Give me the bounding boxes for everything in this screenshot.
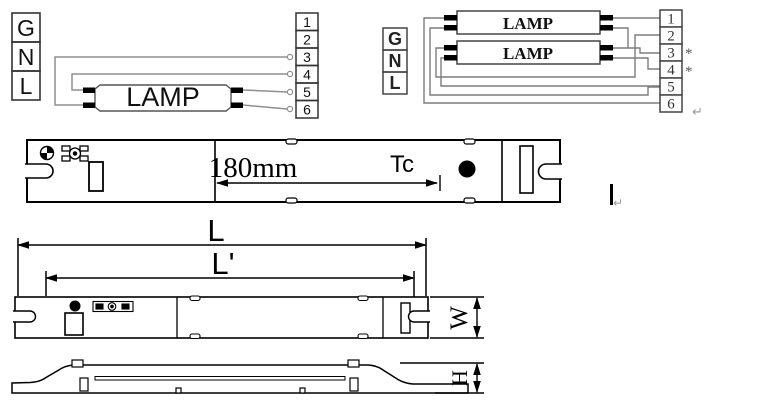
- lamp1-label: LAMP: [503, 14, 553, 33]
- top-view-180mm: 180mm Tc ↵: [25, 139, 623, 210]
- plan-view: [13, 296, 430, 339]
- tc-point-dot: [459, 161, 476, 178]
- right-cable-slot: [520, 146, 533, 193]
- tc-label: Tc: [390, 151, 414, 178]
- plan-screw-icon: [70, 301, 80, 311]
- out-terminal-1: 1: [303, 14, 311, 30]
- overall-length-label: L: [207, 213, 224, 248]
- out-terminal-3: 3: [303, 49, 311, 65]
- terminal2-l-label: L: [390, 73, 401, 93]
- lamp-label: LAMP: [126, 82, 200, 112]
- wire-end-circles: [287, 54, 292, 111]
- left-mounting-notch: [25, 164, 53, 178]
- datasheet-drawing: G N L LAMP: [0, 0, 767, 405]
- out2-terminal-2: 2: [667, 29, 675, 45]
- left-cable-slot: [89, 162, 103, 191]
- dimension-views: L L': [12, 213, 484, 393]
- dual-lamp-1: LAMP: [444, 11, 613, 34]
- terminal-n-label: N: [18, 44, 35, 70]
- screw-icon: [41, 147, 54, 160]
- dual-lamp-wiring-diagram: G N L LAMP LAMP: [383, 10, 703, 119]
- return-mark-icon: ↵: [692, 104, 703, 119]
- terminal2-g-label: G: [388, 29, 402, 49]
- return-mark-icon-2: ↵: [613, 196, 623, 210]
- terminal2-n-label: N: [389, 51, 402, 71]
- out2-terminal-5: 5: [667, 80, 675, 96]
- terminal-l-label: L: [20, 73, 33, 99]
- asterisk-terminal-4: *: [685, 64, 693, 80]
- out-terminal-5: 5: [303, 84, 311, 100]
- right-mounting-notch: [539, 164, 563, 179]
- terminal-g-label: G: [17, 15, 35, 41]
- lamp2-label: LAMP: [503, 44, 553, 63]
- plan-left-cable-slot: [65, 313, 83, 335]
- height-label: H: [447, 370, 472, 386]
- width-label: W: [446, 306, 473, 330]
- lamp-tube: LAMP: [83, 82, 243, 112]
- side-profile-view: [12, 360, 468, 393]
- dual-lamp-2: LAMP: [444, 41, 613, 64]
- single-lamp-wiring-diagram: G N L LAMP: [12, 13, 318, 118]
- mounting-length-label: L': [211, 246, 234, 281]
- plan-left-mounting-notch: [13, 311, 36, 322]
- out2-terminal-6: 6: [667, 97, 675, 113]
- out-terminal-4: 4: [303, 67, 311, 83]
- out-terminal-6: 6: [303, 102, 311, 118]
- ballast-datasheet-page: G N L LAMP: [0, 0, 767, 405]
- out2-terminal-3: 3: [667, 46, 675, 62]
- out2-terminal-4: 4: [667, 63, 675, 79]
- plan-connector-icon: [93, 302, 133, 312]
- asterisk-terminal-3: *: [685, 46, 693, 62]
- tc-distance-label: 180mm: [209, 152, 298, 184]
- plan-right-mounting-notch: [409, 311, 431, 322]
- out-terminal-2: 2: [303, 32, 311, 48]
- out2-terminal-1: 1: [667, 12, 675, 28]
- pcb-edge: [95, 377, 345, 381]
